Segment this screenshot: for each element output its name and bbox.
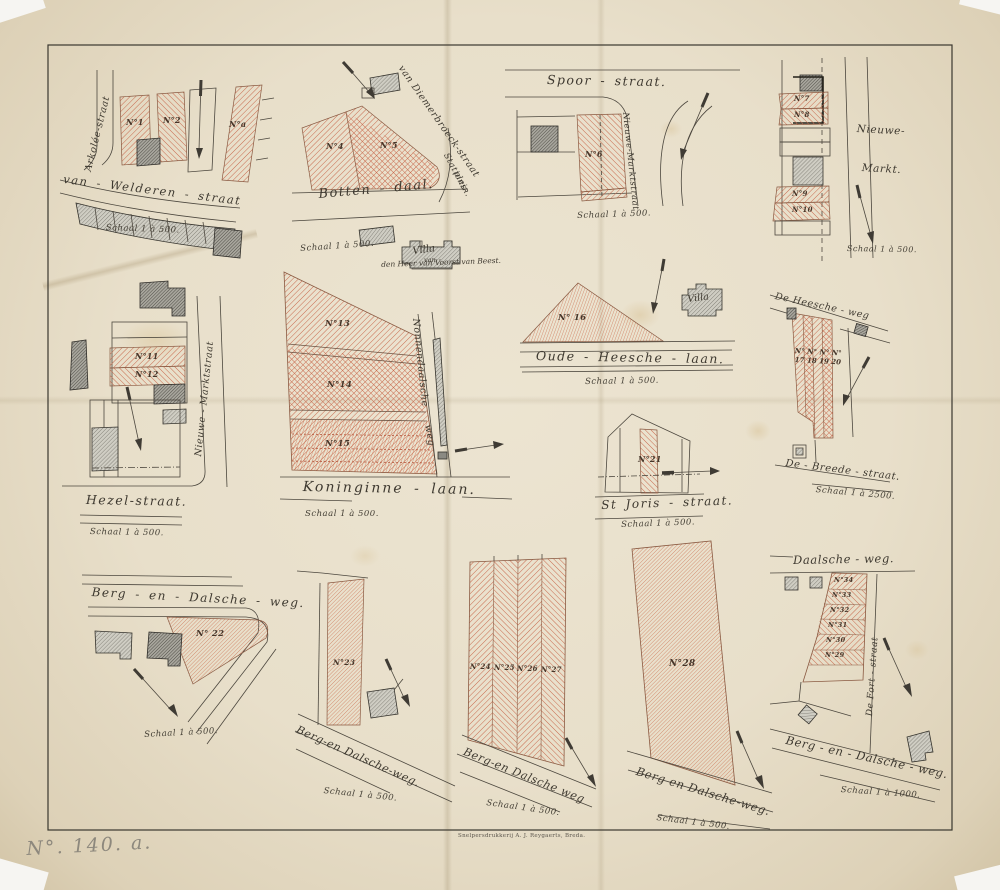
plot-label-31: N°31 bbox=[828, 622, 847, 629]
north-arrow bbox=[680, 93, 708, 160]
street-label-koninginnelaan: Koninginne - laan. bbox=[303, 480, 476, 497]
plan-nieuwe-markt bbox=[773, 57, 874, 262]
plot-label-14: N°14 bbox=[327, 381, 352, 390]
plot-label-16: N° 16 bbox=[558, 314, 586, 323]
plot-label-29: N°29 bbox=[825, 652, 844, 659]
plot-label-26: N°26 bbox=[517, 665, 538, 672]
north-arrow bbox=[134, 669, 178, 717]
north-arrow bbox=[884, 638, 912, 697]
plot-label-6: N°6 bbox=[585, 150, 603, 158]
street-label-nonnendaalsche-weg: weg bbox=[423, 424, 436, 447]
street-label-nieuwe: Nieuwe- bbox=[856, 124, 905, 137]
plot-label-5: N°5 bbox=[380, 141, 398, 149]
north-arrow bbox=[737, 731, 764, 789]
plot-label-10: N°10 bbox=[792, 206, 813, 213]
plan-koninginnelaan bbox=[280, 272, 512, 501]
scale-label: Schaal 1 à 500. bbox=[847, 245, 917, 254]
plot-label-24: N°24 bbox=[470, 663, 491, 670]
printer-imprint: Snelpersdrukkerij A. J. Reygaerts, Breda… bbox=[458, 834, 585, 840]
scale-label: Schaal 1 à 500. bbox=[106, 224, 180, 235]
plot-label-13: N°13 bbox=[325, 320, 350, 329]
plot-label-32: N°32 bbox=[830, 607, 849, 614]
plot-label-33: N°33 bbox=[832, 592, 851, 599]
scale-label: Schaal 1 à 500. bbox=[90, 528, 164, 538]
plot-label-4: N°4 bbox=[326, 142, 344, 150]
plot-label-21: N°21 bbox=[638, 455, 662, 463]
plot-label-34: N°34 bbox=[834, 577, 853, 584]
street-label-markt: Markt. bbox=[861, 163, 901, 176]
plot-label-11: N°11 bbox=[135, 352, 159, 360]
north-arrow bbox=[127, 387, 142, 451]
plot-label-28: N°28 bbox=[669, 660, 695, 669]
street-label-hezelstraat: Hezel-straat. bbox=[86, 494, 188, 508]
north-arrow bbox=[566, 738, 596, 787]
street-label-daalsche-weg: Daalsche - weg. bbox=[793, 553, 894, 566]
street-label-spoorstraat: Spoor - straat. bbox=[547, 74, 667, 89]
plot-label-22: N° 22 bbox=[196, 630, 224, 639]
plan-bottendaal bbox=[292, 62, 470, 269]
north-arrow bbox=[651, 259, 664, 314]
plot-label-7: N°7 bbox=[794, 95, 810, 102]
plot-label-12: N°12 bbox=[135, 370, 159, 378]
plot-label-15: N°15 bbox=[325, 440, 350, 449]
north-arrow bbox=[455, 441, 504, 451]
plot-labels-17-20-row2: 17 18 19 20 bbox=[795, 356, 842, 365]
plot-label-30: N°30 bbox=[826, 637, 845, 644]
plot-label-a: N°a bbox=[229, 120, 246, 128]
plot-label-23: N°23 bbox=[333, 659, 355, 667]
north-arrow bbox=[662, 467, 720, 475]
plot-label-1: N°1 bbox=[126, 118, 144, 126]
scale-label: Schaal 1 à 500. bbox=[305, 510, 379, 519]
plot-label-8: N°8 bbox=[794, 111, 810, 118]
north-arrow bbox=[843, 357, 869, 406]
street-label-oude-heesche-laan: Oude - Heesche - laan. bbox=[536, 350, 725, 366]
plot-label-25: N°25 bbox=[494, 664, 515, 671]
north-arrow bbox=[196, 80, 203, 159]
plot-label-9: N°9 bbox=[792, 190, 808, 197]
plot-label-27: N°27 bbox=[541, 666, 562, 673]
villa-label-2: Villa bbox=[687, 292, 709, 304]
plot-label-2: N°2 bbox=[163, 116, 181, 124]
scale-label: Schaal 1 à 500. bbox=[585, 377, 659, 387]
scanned-map-sheet: Arkolée-straat van - Welderen - straat N… bbox=[0, 0, 1000, 890]
